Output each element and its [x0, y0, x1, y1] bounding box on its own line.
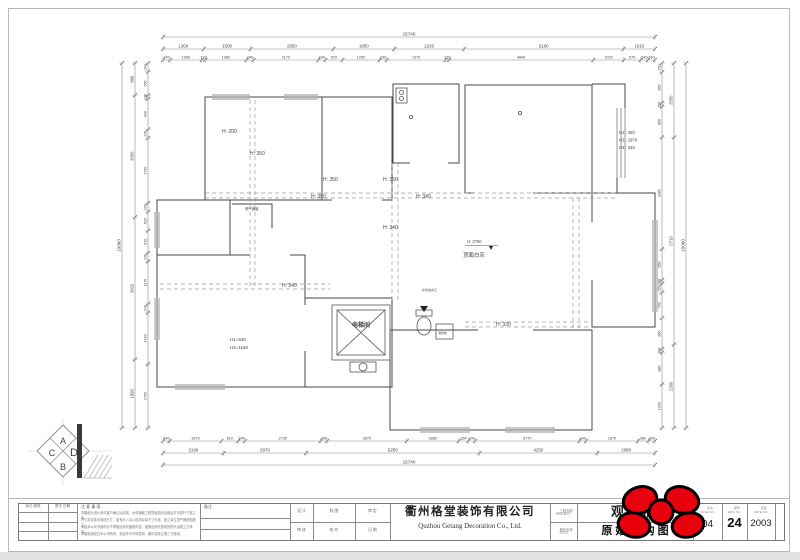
floor-plan-canvas: H: 200 H: 350 H: 350 H: 350 H: 350 H: 34… [0, 0, 800, 560]
window-height-h1: H1=940 [230, 337, 246, 342]
window-left-2 [155, 298, 159, 340]
ceiling-point-living [518, 111, 521, 114]
logo-letter-b: B [60, 462, 66, 472]
dim-label: 1760 [144, 392, 148, 400]
door-gap-living [475, 189, 533, 196]
dim-label: 880 [658, 365, 662, 371]
kitchen-sink-icon [396, 88, 407, 103]
dim-label: 240 [580, 437, 586, 441]
dim-label: 1870 [191, 437, 199, 441]
room-lobby [305, 298, 392, 387]
dim-label: 15740 [403, 32, 416, 37]
dim-label: 1300 [178, 44, 188, 49]
dim-label: 700 [658, 302, 662, 308]
dim-label: 2050 [669, 95, 674, 105]
dim-label: 2170 [282, 56, 290, 60]
staff-cell: 校 对 [313, 528, 355, 532]
staff-cell: 设 计 [290, 509, 313, 513]
dim-chain-left-mid: 890336039201890 [130, 61, 139, 430]
dim-label: 2970 [260, 448, 270, 453]
dim-label: 350 [460, 437, 466, 441]
dim-label: 100 [658, 102, 662, 108]
remark-header: 备注 [204, 505, 212, 509]
dim-label: 250 [658, 285, 662, 291]
ceiling-note-label: 顶面白灰 [463, 251, 486, 259]
door-gap-kitchen [410, 159, 448, 166]
beam-height-label: H: 340 [282, 283, 297, 289]
dim-label: 3360 [130, 151, 135, 161]
dim-label: 1890 [130, 388, 135, 398]
beam-height-label: H: 340 [416, 194, 431, 200]
dim-label: 250 [658, 65, 662, 71]
dim-label: 1380 [222, 56, 230, 60]
logo-letter-c: C [49, 448, 56, 458]
beam-height-label: H: 200 [222, 129, 237, 135]
revision-col-header: 标记 修改 [18, 505, 48, 509]
door-gap-bedroom [250, 252, 290, 259]
ceiling-leader-arrow [489, 246, 493, 250]
window-bottom-1 [420, 428, 470, 432]
company-name-en: Quzhou Getang Decoration Co., Ltd. [390, 523, 550, 531]
dim-chain-right-detail: 2508501008503080850100250700850100880120… [658, 61, 666, 430]
dim-chain-right-mid: 205057102300 [669, 61, 678, 430]
staff-cell: 日 期 [355, 528, 390, 532]
dim-label: 1010 [634, 44, 644, 49]
dim-label: 2650 [287, 44, 297, 49]
room-bottom-left [157, 255, 305, 387]
dim-label: 610 [227, 437, 233, 441]
dim-label: 2870 [363, 437, 371, 441]
right-heights-h2: H2 : 1970 [619, 138, 638, 143]
project-name-label: 工程名称PROJECT [550, 506, 577, 520]
elevator-shaft [332, 305, 390, 372]
dim-label: 240 [469, 437, 475, 441]
window-right-1 [653, 220, 657, 312]
dim-label: 240 [641, 56, 647, 60]
balcony [157, 200, 230, 255]
dim-label: 4840 [517, 56, 525, 60]
door-gap-lobby [301, 305, 308, 351]
dim-label: 120 [200, 56, 206, 60]
company-name-cn: 衢州格堂装饰有限公司 [390, 506, 550, 519]
dim-label: 240 [238, 437, 244, 441]
staff-cell: 审 定 [355, 509, 390, 513]
notes-line: 本图纸版权归本公司所有，未经许可不得复制、翻印或转让第三方使用。 [81, 532, 198, 537]
dim-label: 10060 [681, 239, 686, 252]
room-living [465, 85, 592, 193]
dim-label: 1880 [428, 437, 436, 441]
toilet-icon [416, 306, 432, 335]
dim-label: 5100 [539, 44, 549, 49]
beam-height-label: H: 340 [383, 225, 398, 231]
dim-chain-top-detail: 2401060120138024021702405701250240197012… [161, 56, 657, 64]
dim-label: 2080 [621, 448, 631, 453]
drawing-sheet: H: 200 H: 350 H: 350 H: 350 H: 350 H: 34… [0, 0, 800, 560]
right-heights-h1: H1 : 450 [619, 130, 636, 135]
right-heights-h3: H3 : 340 [619, 145, 636, 150]
dim-label: 10060 [117, 239, 122, 252]
windows [155, 95, 657, 432]
dim-label: 240 [144, 64, 148, 70]
sign-date-col-header: 签字 日期 [48, 505, 77, 509]
room-top-mid [322, 97, 392, 200]
drawing-name-label: 图纸名称TITLE [550, 525, 577, 539]
dim-label: 1200 [658, 402, 662, 410]
dim-label: 240 [163, 56, 169, 60]
hydrant-label: 消防栓 [438, 330, 447, 335]
door-gap-right-room [589, 222, 596, 280]
dim-chain-left-detail: 2406501008402401790240520610240117024014… [144, 61, 152, 430]
room-kitchen [393, 84, 459, 163]
dim-label: 15740 [403, 460, 416, 465]
dim-chain-right-total: 10060 [681, 61, 690, 430]
dim-chain-left-total: 10060 [117, 61, 126, 430]
window-bottom-2 [505, 428, 555, 432]
dim-label: 240 [649, 437, 655, 441]
water-inlet-label: 水管进水口 [422, 287, 437, 292]
beam-height-label: H: 350 [323, 177, 338, 183]
dim-label: 240 [144, 254, 148, 260]
dim-label: 890 [130, 75, 135, 83]
beam-height-label: H: 330 [496, 322, 511, 328]
dim-label: 100 [658, 279, 662, 285]
gas-pipe-label: 燃气管道 [245, 206, 259, 211]
staff-cell: 制 图 [313, 509, 355, 513]
company-logo: A D C B [28, 418, 112, 486]
door-gap-bottom-room [478, 327, 533, 334]
logo-bar [77, 424, 82, 478]
dim-label: 240 [163, 437, 169, 441]
logo-letter-a: A [60, 436, 66, 446]
dim-label: 5710 [669, 236, 674, 246]
dim-label: 520 [144, 218, 148, 224]
sheet-border [9, 9, 790, 552]
dim-label: 1790 [144, 167, 148, 175]
dim-label: 3770 [523, 437, 531, 441]
dim-label: 610 [144, 239, 148, 245]
wall-corner-top-right [592, 84, 625, 108]
logo-shadow-hatch [82, 455, 112, 478]
elevator-label: 电梯间 [352, 321, 370, 329]
dim-label: 2230 [424, 44, 434, 49]
date-header: 日期DATE NO. [747, 504, 775, 517]
dim-label: 840 [144, 111, 148, 117]
dim-label: 3920 [130, 283, 135, 293]
notes-header: 注 意 事 项 : [81, 505, 103, 509]
dim-label: 240 [144, 131, 148, 137]
dim-label: 240 [144, 204, 148, 210]
beam-height-label: H: 350 [250, 151, 265, 157]
dim-label: 100 [144, 94, 148, 100]
logo-letter-d: D [70, 447, 78, 459]
page-edge-shadow [0, 552, 800, 560]
dim-label: 850 [658, 119, 662, 125]
ceiling-height-label: H: 2760 [467, 239, 482, 244]
dim-label: 380 [640, 437, 646, 441]
window-right-column [617, 108, 625, 178]
dim-label: 4250 [533, 448, 543, 453]
dim-chain-bottom-detail: 2401870610240273024028701880350240377024… [161, 437, 657, 445]
dim-label: 120 [444, 56, 450, 60]
dim-label: 2730 [279, 437, 287, 441]
dim-label: 6250 [388, 448, 398, 453]
beam-height-label: H: 350 [383, 177, 398, 183]
dwg-no-value: 24 [722, 516, 747, 530]
room-right [592, 193, 655, 327]
dim-label: 240 [321, 437, 327, 441]
beam-height-label: H: 350 [311, 194, 326, 200]
window-top-1 [212, 95, 250, 99]
dim-label: 1060 [182, 56, 190, 60]
dim-label: 240 [144, 305, 148, 311]
dim-chain-top-total: 15740 [161, 32, 657, 41]
dim-label: 850 [658, 330, 662, 336]
ceiling-point-kitchen [409, 115, 412, 118]
date-value: 2003 [747, 519, 775, 529]
dim-label: 570 [331, 56, 337, 60]
dim-label: 240 [319, 56, 325, 60]
room-top-left [205, 97, 322, 200]
dim-label: 1970 [412, 56, 420, 60]
walls [157, 84, 655, 430]
door-gap-hall [332, 196, 382, 203]
dim-label: 570 [629, 56, 635, 60]
window-height-h2: H2=1160 [230, 345, 249, 350]
window-left-1 [155, 212, 159, 248]
dim-label: 3080 [658, 189, 662, 197]
dim-label: 1420 [144, 334, 148, 342]
room-bottom-big [390, 330, 592, 430]
staff-cell: 审 核 [290, 528, 313, 532]
dim-label: 1500 [222, 44, 232, 49]
window-bottom-left [175, 385, 225, 389]
dim-label: 2300 [669, 381, 674, 391]
dim-label: 850 [658, 262, 662, 268]
dim-label: 2190 [188, 448, 198, 453]
red-bow-sticker [612, 481, 712, 549]
dim-chain-bottom-total: 15740 [161, 460, 657, 469]
dim-label: 650 [144, 80, 148, 86]
dim-label: 1170 [144, 279, 148, 287]
dim-label: 240 [247, 56, 253, 60]
window-top-2 [284, 95, 318, 99]
bow-shapes [616, 482, 707, 540]
dim-label: 1950 [359, 44, 369, 49]
dim-label: 100 [658, 348, 662, 354]
dim-label: 850 [658, 84, 662, 90]
dim-label: 240 [648, 56, 654, 60]
dim-chain-bottom-mid: 21902970625042502080 [161, 448, 657, 457]
dim-label: 240 [380, 56, 386, 60]
dim-label: 1870 [608, 437, 616, 441]
dim-chain-top-mid: 1300150026501950223051001010 [161, 44, 657, 53]
dim-label: 1020 [604, 56, 612, 60]
dim-label: 1250 [357, 56, 365, 60]
